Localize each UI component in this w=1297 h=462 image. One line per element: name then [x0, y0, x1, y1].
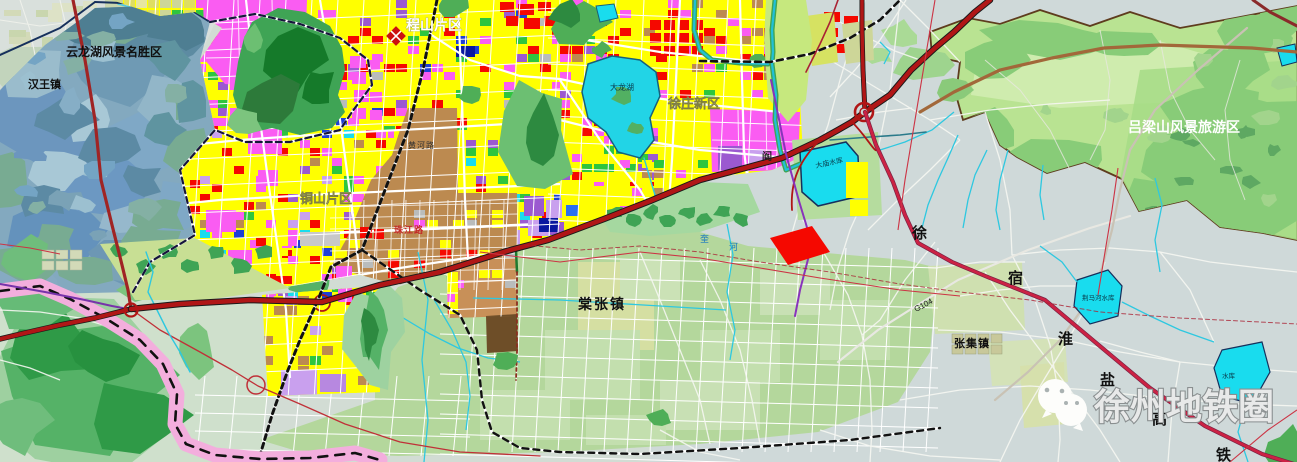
- svg-text:宿: 宿: [1008, 269, 1023, 287]
- svg-text:张集镇: 张集镇: [954, 336, 990, 350]
- svg-text:徐: 徐: [911, 224, 927, 242]
- svg-text:铜山片区: 铜山片区: [299, 191, 352, 206]
- svg-text:铁: 铁: [1216, 446, 1231, 462]
- svg-text:荆马河水库: 荆马河水库: [1082, 293, 1115, 302]
- svg-text:徐州地铁圈: 徐州地铁圈: [1093, 386, 1274, 427]
- svg-text:吕梁山风景旅游区: 吕梁山风景旅游区: [1128, 119, 1240, 135]
- svg-text:淮: 淮: [1058, 330, 1073, 348]
- svg-text:云龙湖风景名胜区: 云龙湖风景名胜区: [66, 44, 162, 59]
- svg-text:程山片区: 程山片区: [406, 17, 462, 33]
- svg-text:汉王镇: 汉王镇: [28, 77, 61, 91]
- svg-text:黄河路: 黄河路: [408, 140, 435, 150]
- svg-text:河: 河: [729, 241, 738, 252]
- svg-text:奎: 奎: [700, 233, 709, 244]
- svg-text:水库: 水库: [1222, 371, 1236, 380]
- svg-text:阎: 阎: [762, 150, 772, 163]
- svg-text:大龙湖: 大龙湖: [610, 82, 634, 92]
- svg-text:棠张镇: 棠张镇: [577, 296, 626, 312]
- svg-text:珠江路: 珠江路: [394, 224, 424, 235]
- svg-text:徐庄新区: 徐庄新区: [667, 96, 720, 111]
